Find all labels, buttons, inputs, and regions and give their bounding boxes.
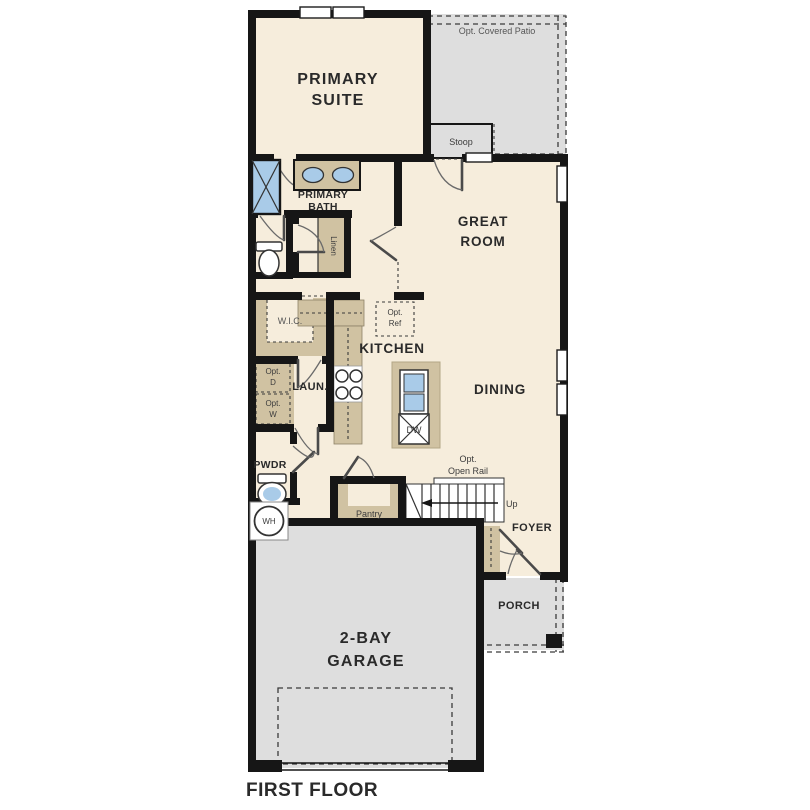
room-label-foyer: FOYER	[512, 522, 552, 534]
label-opt-ref-1: Opt.	[387, 308, 402, 317]
toilet-pwdr	[258, 474, 286, 506]
label-opt-covered-patio: Opt. Covered Patio	[459, 26, 536, 36]
label-opt-w-2: W	[269, 410, 277, 419]
room-label-primary-suite-1: PRIMARY	[297, 71, 379, 88]
room-label-great-room-2: ROOM	[460, 234, 505, 249]
opt-open-rail-bar	[434, 478, 504, 484]
room-label-laundry: LAUN.	[292, 381, 328, 393]
shower-fixture	[252, 160, 280, 214]
stairs	[406, 478, 504, 522]
room-label-primary-suite-2: SUITE	[311, 92, 364, 109]
label-opt-d-2: D	[270, 378, 276, 387]
label-opt-open-rail-2: Open Rail	[448, 466, 488, 476]
foyer-closet	[482, 526, 500, 572]
label-wh: WH	[262, 517, 276, 526]
kitchen-island	[392, 362, 440, 448]
page-title: FIRST FLOOR	[246, 780, 378, 801]
room-label-garage-1: 2-BAY	[340, 630, 393, 647]
room-label-porch: PORCH	[498, 600, 540, 612]
stove-fixture	[334, 366, 362, 402]
label-dw: DW	[407, 425, 422, 435]
room-label-pwdr: PWDR	[253, 459, 286, 471]
floor-plan: PRIMARY SUITE Opt. Covered Patio Stoop P…	[0, 0, 810, 810]
floor-plan-page: PRIMARY SUITE Opt. Covered Patio Stoop P…	[0, 0, 810, 810]
room-label-primary-bath-2: BATH	[308, 201, 338, 213]
label-opt-ref-2: Ref	[389, 319, 402, 328]
room-label-kitchen: KITCHEN	[359, 341, 425, 356]
room-label-dining: DINING	[474, 382, 526, 397]
label-opt-d-1: Opt.	[265, 367, 280, 376]
room-label-great-room-1: GREAT	[458, 214, 508, 229]
label-opt-open-rail-1: Opt.	[459, 454, 476, 464]
label-pantry: Pantry	[356, 509, 383, 519]
room-label-primary-bath-1: PRIMARY	[298, 189, 348, 201]
label-stoop: Stoop	[449, 137, 473, 147]
label-linen: Linen	[329, 236, 338, 256]
vanity-sinks	[294, 160, 360, 190]
room-label-garage-2: GARAGE	[327, 653, 404, 670]
label-opt-w-1: Opt.	[265, 399, 280, 408]
label-wic: W.I.C.	[278, 316, 303, 326]
porch-post	[546, 634, 562, 648]
label-up: Up	[506, 499, 518, 509]
